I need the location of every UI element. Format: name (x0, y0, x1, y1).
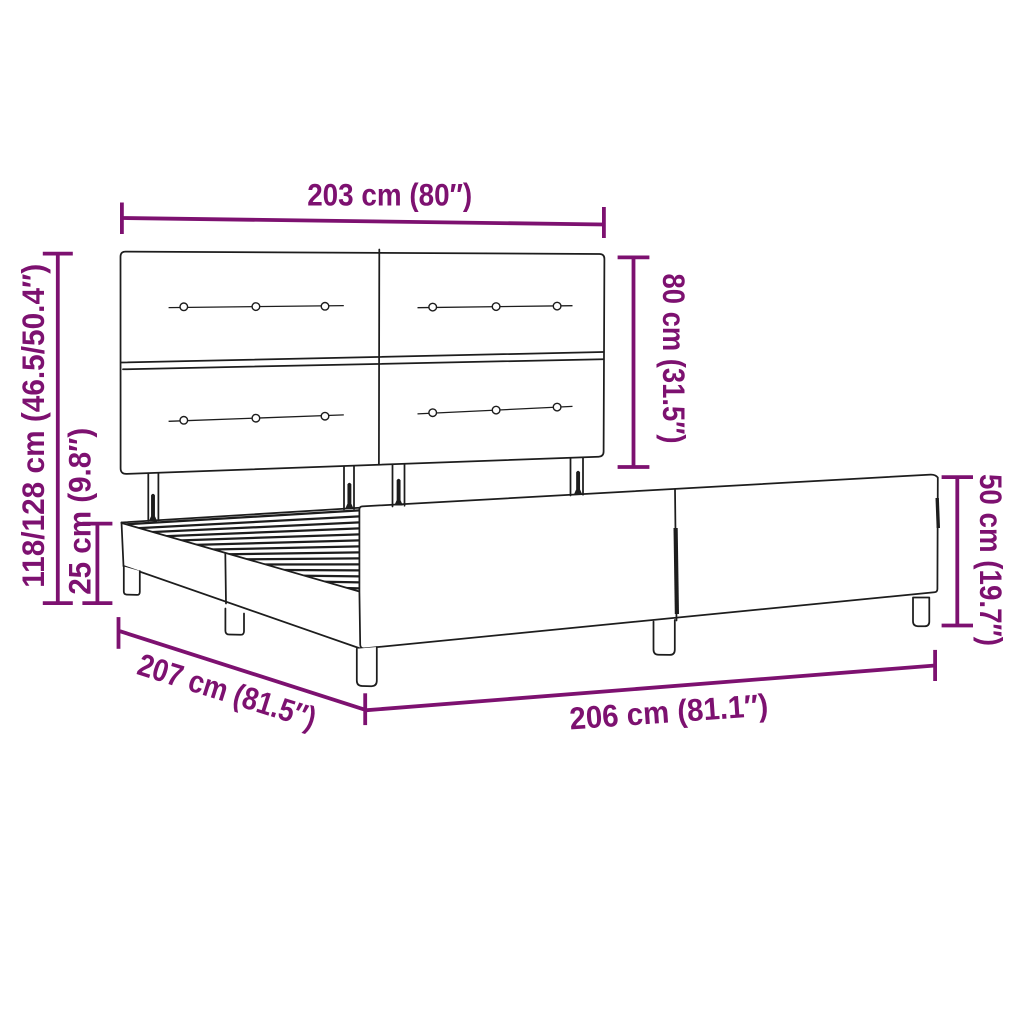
svg-text:80 cm (31.5″): 80 cm (31.5″) (656, 274, 692, 444)
svg-text:118/128 cm (46.5/50.4″): 118/128 cm (46.5/50.4″) (15, 264, 51, 588)
svg-text:50 cm (19.7″): 50 cm (19.7″) (973, 474, 1009, 646)
svg-text:203 cm (80″): 203 cm (80″) (307, 177, 472, 213)
svg-text:25 cm (9.8″): 25 cm (9.8″) (62, 428, 98, 595)
